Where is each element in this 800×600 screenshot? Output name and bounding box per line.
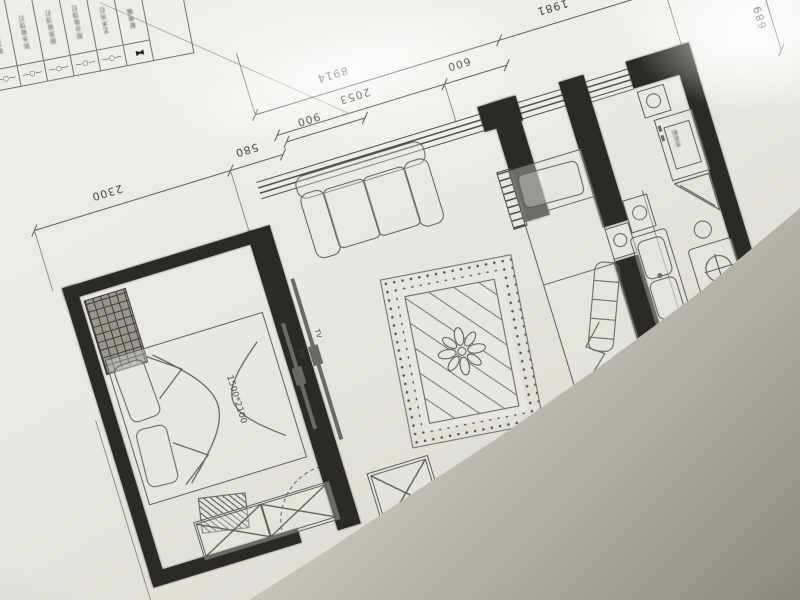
flower-motif <box>435 324 489 378</box>
wall-bedroom-top <box>62 230 257 301</box>
dim-580: 580 <box>233 140 260 159</box>
floorplan-photo: 吸顶灯具 —○— 防水吸顶灯 —○— 厨房吸顶灯 —○— 阳台吸顶灯 —○— 艺… <box>0 0 800 600</box>
dim-extension <box>236 53 256 114</box>
basin-round <box>644 91 663 110</box>
dim-8914: 8914 <box>315 64 349 86</box>
dim-900: 900 <box>295 110 322 129</box>
tv-label-living: TV <box>313 328 323 339</box>
dim-tick <box>284 136 290 148</box>
gas-meter-dial <box>612 231 629 248</box>
window-daybed <box>517 89 565 119</box>
washer-knob <box>661 135 666 142</box>
window-kitchen <box>585 69 632 99</box>
washer-knob <box>658 125 663 132</box>
dim-600: 600 <box>445 54 472 73</box>
kitchen-sink-small <box>637 84 672 119</box>
dim-2300: 2300 <box>90 182 124 204</box>
drain-circle <box>692 218 714 240</box>
basin-round <box>630 203 649 222</box>
sink-basin <box>636 235 674 281</box>
dim-extension <box>34 232 53 292</box>
dim-extension <box>665 0 682 45</box>
dim-extension <box>445 85 457 121</box>
dim-extension <box>230 172 249 232</box>
rug <box>380 254 544 448</box>
dim-tick <box>274 129 280 141</box>
dim-1981: 1981 <box>535 0 569 18</box>
